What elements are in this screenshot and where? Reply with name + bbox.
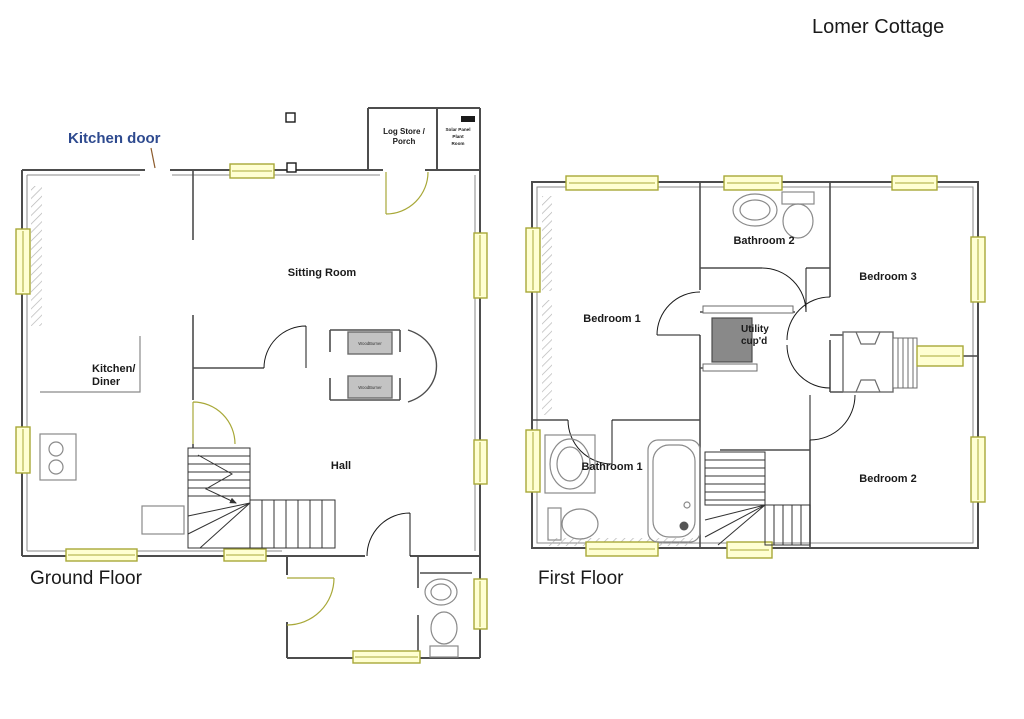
bedroom2-door-arc [810,395,855,440]
room-label-bathroom2: Bathroom 2 [733,235,794,247]
room-label-hall: Hall [331,460,351,472]
solar-room-marker [461,116,475,122]
bedroom3-door-arc [787,297,830,340]
kitchen-hall-door-arc [193,402,235,444]
first-floor-plan: Bedroom 1 Bathroom 2 Bedroom 3 Bathroom … [526,176,985,558]
room-label-kitchen-line1: Kitchen/ [92,363,135,375]
toilet-icon [562,509,598,539]
room-label-bedroom2: Bedroom 2 [859,473,916,485]
toilet-cistern [548,508,561,540]
room-label-plant-line3: Room [451,141,464,146]
toilet-icon [783,204,813,238]
toilet-icon [431,612,457,644]
porch-door-arc [287,578,334,625]
floorplan-drawing: WoodBurner WoodBurner [0,0,1024,719]
sink-icon [425,579,457,605]
room-label-kitchen-line2: Diner [92,376,121,388]
hall-porch-door-arc [367,513,410,556]
wall-hatching [542,300,552,415]
ground-wc-fixtures [425,579,458,657]
bath-drain [680,522,689,531]
vestibule-door-arc [787,345,830,388]
vent-marker [287,163,296,172]
bathroom2-door-arc [762,268,806,312]
room-label-plant-line2: Plant [452,134,464,139]
cooker-hob-icon [49,460,63,474]
ground-floor-label: Ground Floor [30,568,142,590]
wall-hatching [542,196,552,291]
page-title: Lomer Cottage [812,16,944,39]
first-floor-label: First Floor [538,568,624,590]
chimney-breast [843,332,963,392]
room-label-log-store-line1: Log Store / [383,127,426,136]
woodburner-label: WoodBurner [358,385,382,390]
kitchen-door-annotation: Kitchen door [68,130,161,147]
room-label-sitting-room: Sitting Room [288,267,357,279]
room-label-bedroom3: Bedroom 3 [859,271,916,283]
ground-stairs [188,448,335,548]
bathtub-icon [648,440,700,542]
room-label-bathroom1: Bathroom 1 [581,461,642,473]
back-door-arc [386,172,428,214]
woodburner-label: WoodBurner [358,341,382,346]
ground-interior-walls [193,170,472,658]
room-label-utility-line1: Utility [741,324,769,335]
cooker-hob-icon [49,442,63,456]
bathroom1-door-arc [568,420,612,464]
bedroom1-door-arc [657,292,700,335]
toilet-cistern [782,192,814,204]
first-stairs [705,452,810,545]
bathroom1-fixtures [545,435,700,542]
floorplan-page: Lomer Cottage Kitchen door Ground Floor … [0,0,1024,719]
bathroom2-fixtures [733,192,814,238]
wall-hatching [31,186,42,326]
kitchen-door-leader-line [151,148,155,168]
room-label-utility-line2: cup'd [741,336,767,347]
room-label-log-store-line2: Porch [393,137,416,146]
vent-marker [286,113,295,122]
room-label-bedroom1: Bedroom 1 [583,313,640,325]
room-label-plant-line1: Solar Panel [445,127,470,132]
woodburner-stoves: WoodBurner WoodBurner [348,332,392,398]
sitting-room-door-arc [264,326,306,368]
